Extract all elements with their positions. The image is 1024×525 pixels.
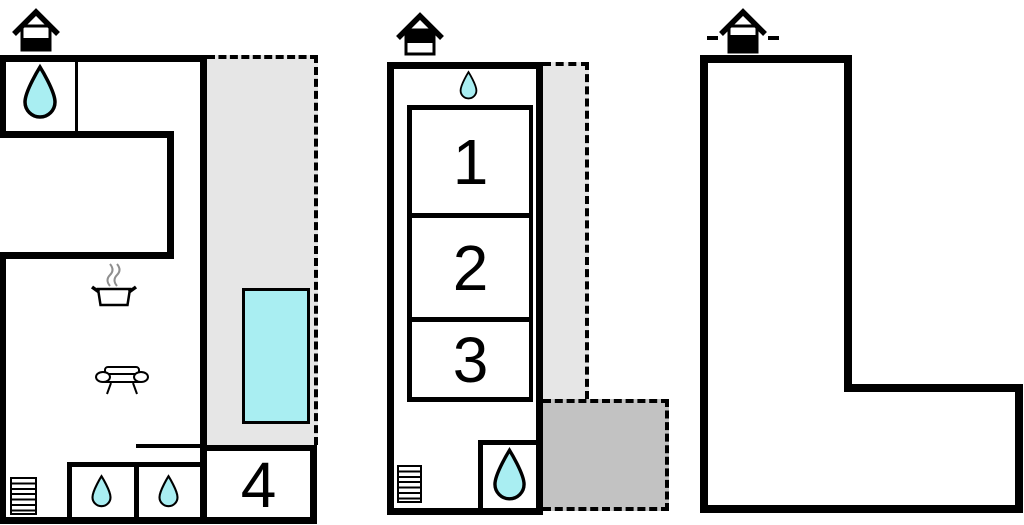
house-upper-floor-icon xyxy=(396,10,444,56)
room-2-label: 2 xyxy=(412,218,529,317)
room-3-label: 3 xyxy=(412,322,529,397)
pool xyxy=(242,288,310,424)
wall xyxy=(844,55,852,392)
wall xyxy=(0,131,174,138)
wall xyxy=(0,252,174,259)
wall xyxy=(844,384,1023,392)
sofa-icon xyxy=(95,364,149,400)
room-1-label: 1 xyxy=(412,110,529,213)
wall xyxy=(478,440,536,445)
house-site-icon xyxy=(707,8,779,54)
wall xyxy=(134,462,139,524)
stairs-icon xyxy=(10,477,37,515)
wall xyxy=(75,57,78,135)
wall xyxy=(529,105,533,402)
terrace xyxy=(543,399,669,511)
wall xyxy=(478,440,483,508)
wall xyxy=(700,505,1023,513)
water-drop-icon xyxy=(459,71,478,100)
wall xyxy=(0,55,207,62)
wall xyxy=(200,55,207,524)
wall xyxy=(387,508,543,515)
wall xyxy=(700,55,852,63)
wall xyxy=(167,131,174,259)
water-drop-icon xyxy=(91,475,112,508)
wall xyxy=(0,55,6,138)
house-ground-floor-icon xyxy=(12,6,60,52)
floor-plan-figure: 4 xyxy=(0,0,1024,525)
wall xyxy=(407,397,533,402)
wall xyxy=(136,444,207,448)
room-4-label: 4 xyxy=(207,452,310,517)
wall xyxy=(1015,384,1023,513)
wall xyxy=(700,55,708,513)
wall xyxy=(67,462,72,524)
cooking-pot-icon xyxy=(90,262,138,308)
wall xyxy=(387,62,394,515)
wall xyxy=(310,443,317,524)
wall xyxy=(536,62,543,515)
water-drop-icon xyxy=(158,475,179,508)
stairs-icon xyxy=(397,465,422,503)
wall xyxy=(387,62,543,69)
water-drop-icon xyxy=(23,65,57,120)
balcony xyxy=(543,62,589,399)
water-drop-icon xyxy=(493,447,526,503)
wall xyxy=(0,252,6,524)
